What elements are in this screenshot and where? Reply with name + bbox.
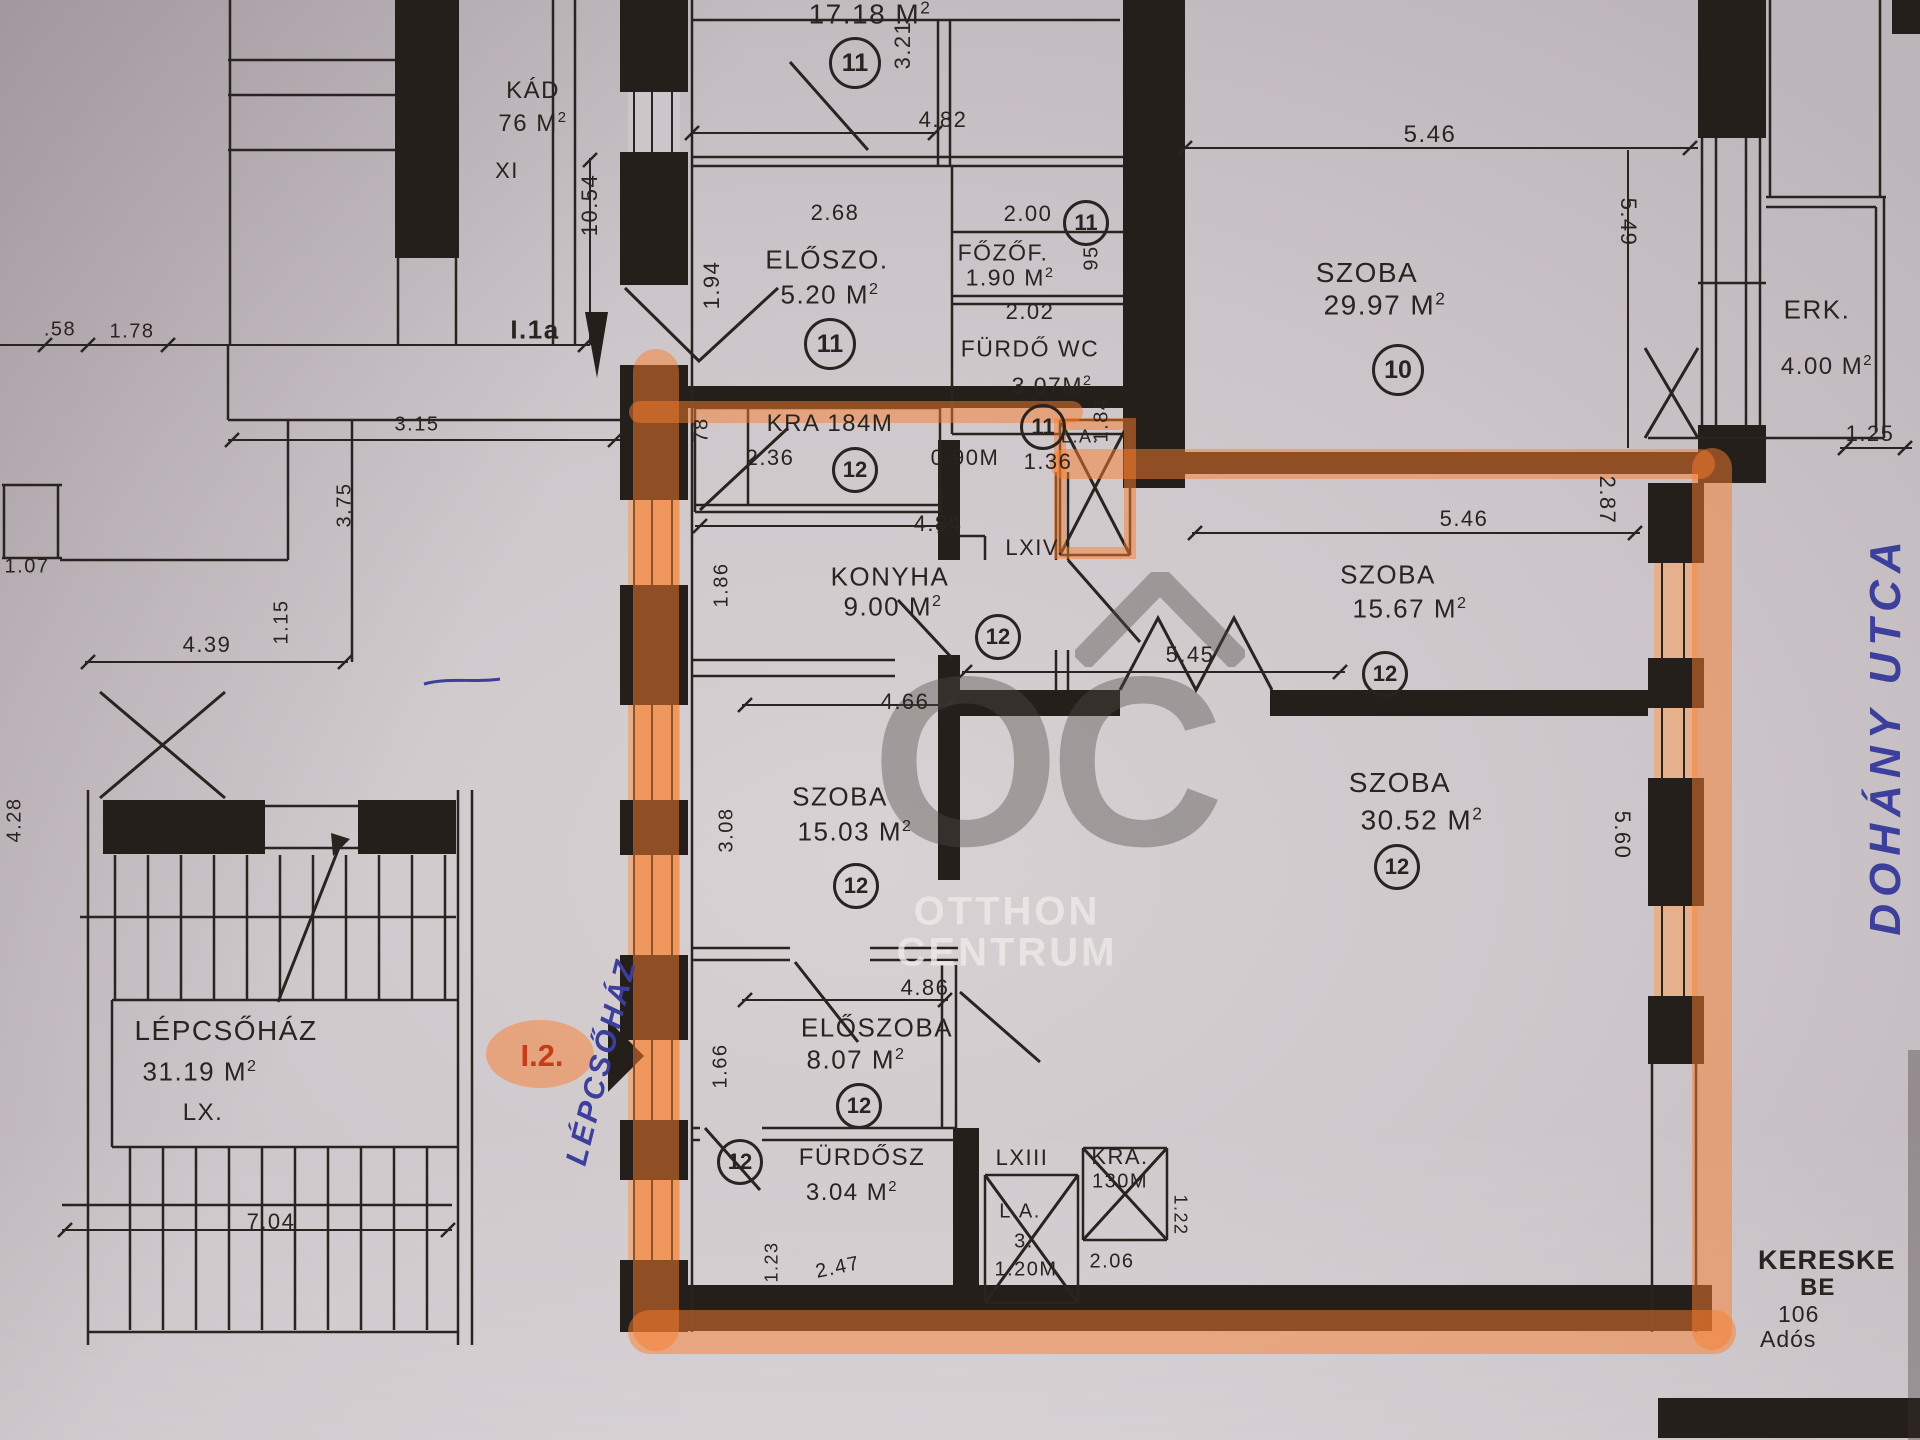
room-area-szoba-c: 15.03 M2: [798, 817, 913, 848]
corner-text-line1: KERESKE: [1758, 1245, 1896, 1276]
watermark-roof-icon: [1075, 572, 1245, 667]
closet-label-kra: KRA 184M: [767, 410, 894, 438]
dim-5-60: 5.60: [1609, 811, 1635, 860]
dim-1-36: 1.36: [1024, 449, 1073, 475]
room-label-szoba-c: SZOBA: [792, 782, 888, 813]
dim-4-66: 4.66: [881, 689, 930, 715]
pen-mark: [424, 679, 500, 684]
dim-2-87: 2.87: [1594, 476, 1620, 525]
dim-58: .58: [44, 319, 76, 342]
dim-3-21: 3.21: [890, 21, 916, 70]
lift-label-num: 3.: [1014, 1231, 1034, 1254]
corner-text-line3: 106: [1778, 1301, 1819, 1328]
dim-1-78: 1.78: [110, 321, 155, 344]
room-area-furdosz: 3.04 M2: [806, 1179, 898, 1207]
dim-5-46-mid: 5.46: [1440, 506, 1489, 532]
unit-circle-top: 11: [829, 37, 881, 89]
entrance-label-i2: I.2.: [520, 1038, 563, 1074]
dim-5-46-top: 5.46: [1404, 121, 1457, 149]
dim-1-94: 1.94: [699, 261, 725, 310]
corridor-label-lxiv: LXIV.: [1005, 535, 1064, 561]
room-area-lepcsohaz: 31.19 M2: [143, 1057, 258, 1088]
dim-1-15: 1.15: [271, 600, 294, 645]
entrance-label-i1a: I.1a: [510, 315, 559, 346]
room-label-furdosz: FÜRDŐSZ: [799, 1144, 926, 1172]
floor-label-lx: LX.: [183, 1099, 224, 1127]
room-label-konyha: KONYHA: [831, 562, 950, 593]
dim-2-00: 2.00: [1004, 201, 1053, 227]
dim-7-04: 7.04: [247, 1209, 296, 1235]
closet-label-kra-b: KRA.: [1091, 1144, 1148, 1170]
room-area-eloszoba: 8.07 M2: [807, 1045, 906, 1076]
lift-label-dim: 1.20M: [994, 1259, 1057, 1282]
dim-78: 78: [691, 417, 714, 442]
dim-95: 95: [1081, 245, 1104, 270]
dim-10-54: 10.54: [577, 174, 603, 237]
closet-dim-kra-b: 130M: [1092, 1171, 1148, 1194]
room-label-kad: KÁD: [506, 77, 560, 105]
floorplan-scan: OC OTTHON CENTRUM KÁD 76 M2 XI 17.18 M2 …: [0, 0, 1920, 1440]
unit-circle-szoba-c: 12: [833, 863, 879, 909]
room-area-eloszo: 5.20 M2: [781, 280, 880, 311]
room-label-eloszoba: ELŐSZOBA: [801, 1013, 953, 1044]
dim-4-86: 4.86: [901, 975, 950, 1001]
room-area-fozof: 1.90 M2: [966, 265, 1055, 292]
dim-1-25: 1.25: [1846, 421, 1895, 447]
dim-2-06: 2.06: [1090, 1251, 1135, 1274]
dim-1-86: 1.86: [711, 563, 734, 608]
room-label-lepcsohaz: LÉPCSŐHÁZ: [134, 1015, 317, 1047]
room-area-szoba-b: 15.67 M2: [1353, 594, 1468, 625]
unit-circle-kra: 12: [832, 447, 878, 493]
room-label-erk: ERK.: [1784, 295, 1851, 326]
unit-circle-fozof: 11: [1063, 200, 1109, 246]
unit-circle-konyha: 12: [975, 614, 1021, 660]
room-area-erk: 4.00 M2: [1781, 353, 1873, 381]
room-label-szoba-a: SZOBA: [1316, 257, 1418, 289]
unit-circle-furdo: 11: [1020, 404, 1066, 450]
room-area-szoba-a: 29.97 M2: [1324, 288, 1447, 321]
dim-0-90: 0.90M: [931, 445, 1000, 471]
room-label-szoba-b: SZOBA: [1340, 560, 1436, 591]
room-area-konyha: 9.00 M2: [844, 592, 943, 623]
unit-circle-szoba-d: 12: [1374, 844, 1420, 890]
dim-4-28: 4.28: [4, 798, 27, 843]
watermark-line1: OTTHON: [914, 890, 1101, 935]
room-label-eloszo: ELŐSZO.: [765, 245, 888, 276]
corner-text-line2: BE: [1800, 1274, 1835, 1302]
dim-1-07: 1.07: [5, 556, 50, 579]
scan-smudge: [1908, 1050, 1920, 1440]
dim-5-49: 5.49: [1615, 198, 1641, 247]
room-area-kad: 76 M2: [498, 110, 567, 138]
unit-label-xi: XI: [495, 158, 519, 184]
dim-2-68: 2.68: [811, 200, 860, 226]
room-area-furdo: 3.07M2: [1012, 373, 1093, 400]
room-label-szoba-d: SZOBA: [1349, 767, 1451, 799]
unit-circle-szoba-b: 12: [1362, 651, 1408, 697]
dim-3-15: 3.15: [395, 414, 440, 437]
unit-circle-eloszoba: 12: [836, 1083, 882, 1129]
dim-4-82: 4.82: [919, 107, 968, 133]
dim-3-08: 3.08: [716, 808, 739, 853]
watermark-line2: CENTRUM: [897, 931, 1118, 976]
corner-text-line4: Adós: [1760, 1326, 1816, 1353]
dim-2-36: 2.36: [746, 445, 795, 471]
lift-label-la: L.A.: [999, 1201, 1041, 1224]
dim-1-66: 1.66: [710, 1044, 733, 1089]
dim-5-45: 5.45: [1166, 642, 1215, 668]
dim-1-22: 1.22: [1170, 1194, 1191, 1235]
handwriting-street-name: DOHÁNY UTCA: [1861, 534, 1911, 935]
room-area-szoba-d: 30.52 M2: [1361, 803, 1484, 836]
dim-2-02: 2.02: [1006, 299, 1055, 325]
dim-1-84: 1.84: [1091, 398, 1114, 443]
dim-4-39: 4.39: [183, 632, 232, 658]
unit-circle-furdosz: 12: [717, 1139, 763, 1185]
dim-3-75: 3.75: [334, 483, 357, 528]
shaft-label-lxiii: LXIII: [996, 1145, 1049, 1171]
room-label-furdo: FÜRDŐ WC: [961, 336, 1099, 363]
unit-circle-eloszo: 11: [804, 318, 856, 370]
room-label-fozof: FŐZŐF.: [958, 240, 1049, 267]
stairs-arrowhead: [331, 833, 350, 856]
unit-circle-szoba-a: 10: [1372, 344, 1424, 396]
dim-1-23: 1.23: [762, 1241, 783, 1282]
dim-4-84: 4.84: [914, 511, 963, 537]
